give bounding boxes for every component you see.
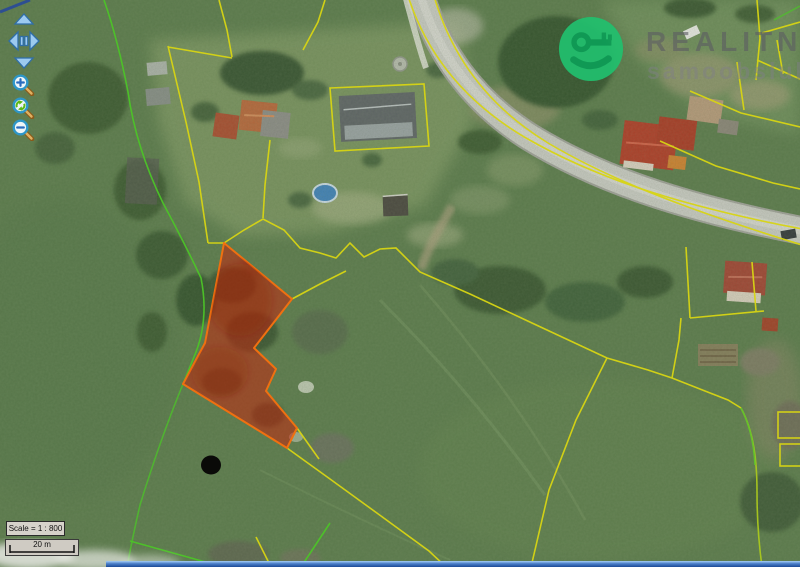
pan-up-button[interactable]: [15, 14, 33, 24]
pan-control: [7, 12, 41, 70]
scale-bar-line: [6, 540, 78, 555]
bottom-frame-edge: [106, 561, 800, 567]
marker-dot[interactable]: [201, 456, 221, 475]
pan-center-icon[interactable]: [25, 37, 28, 46]
pan-down-button[interactable]: [15, 58, 33, 68]
aerial-map-canvas[interactable]: [0, 0, 800, 567]
pan-right-button[interactable]: [30, 32, 39, 50]
zoom-out-icon: [14, 121, 32, 139]
zoom-in-icon: [14, 76, 32, 94]
zoom-extent-icon: [14, 99, 32, 117]
zoom-in-button[interactable]: [11, 73, 36, 96]
scale-label: Scale = 1 : 800: [6, 521, 65, 536]
pan-center-icon[interactable]: [20, 37, 23, 46]
zoom-extent-button[interactable]: [11, 96, 36, 119]
pan-left-button[interactable]: [9, 32, 18, 50]
map-viewer: REALITNÍ samoobsluha Scale = 1 : 800 20 …: [0, 0, 800, 567]
zoom-out-button[interactable]: [11, 118, 36, 141]
scale-bar: 20 m: [5, 539, 79, 556]
